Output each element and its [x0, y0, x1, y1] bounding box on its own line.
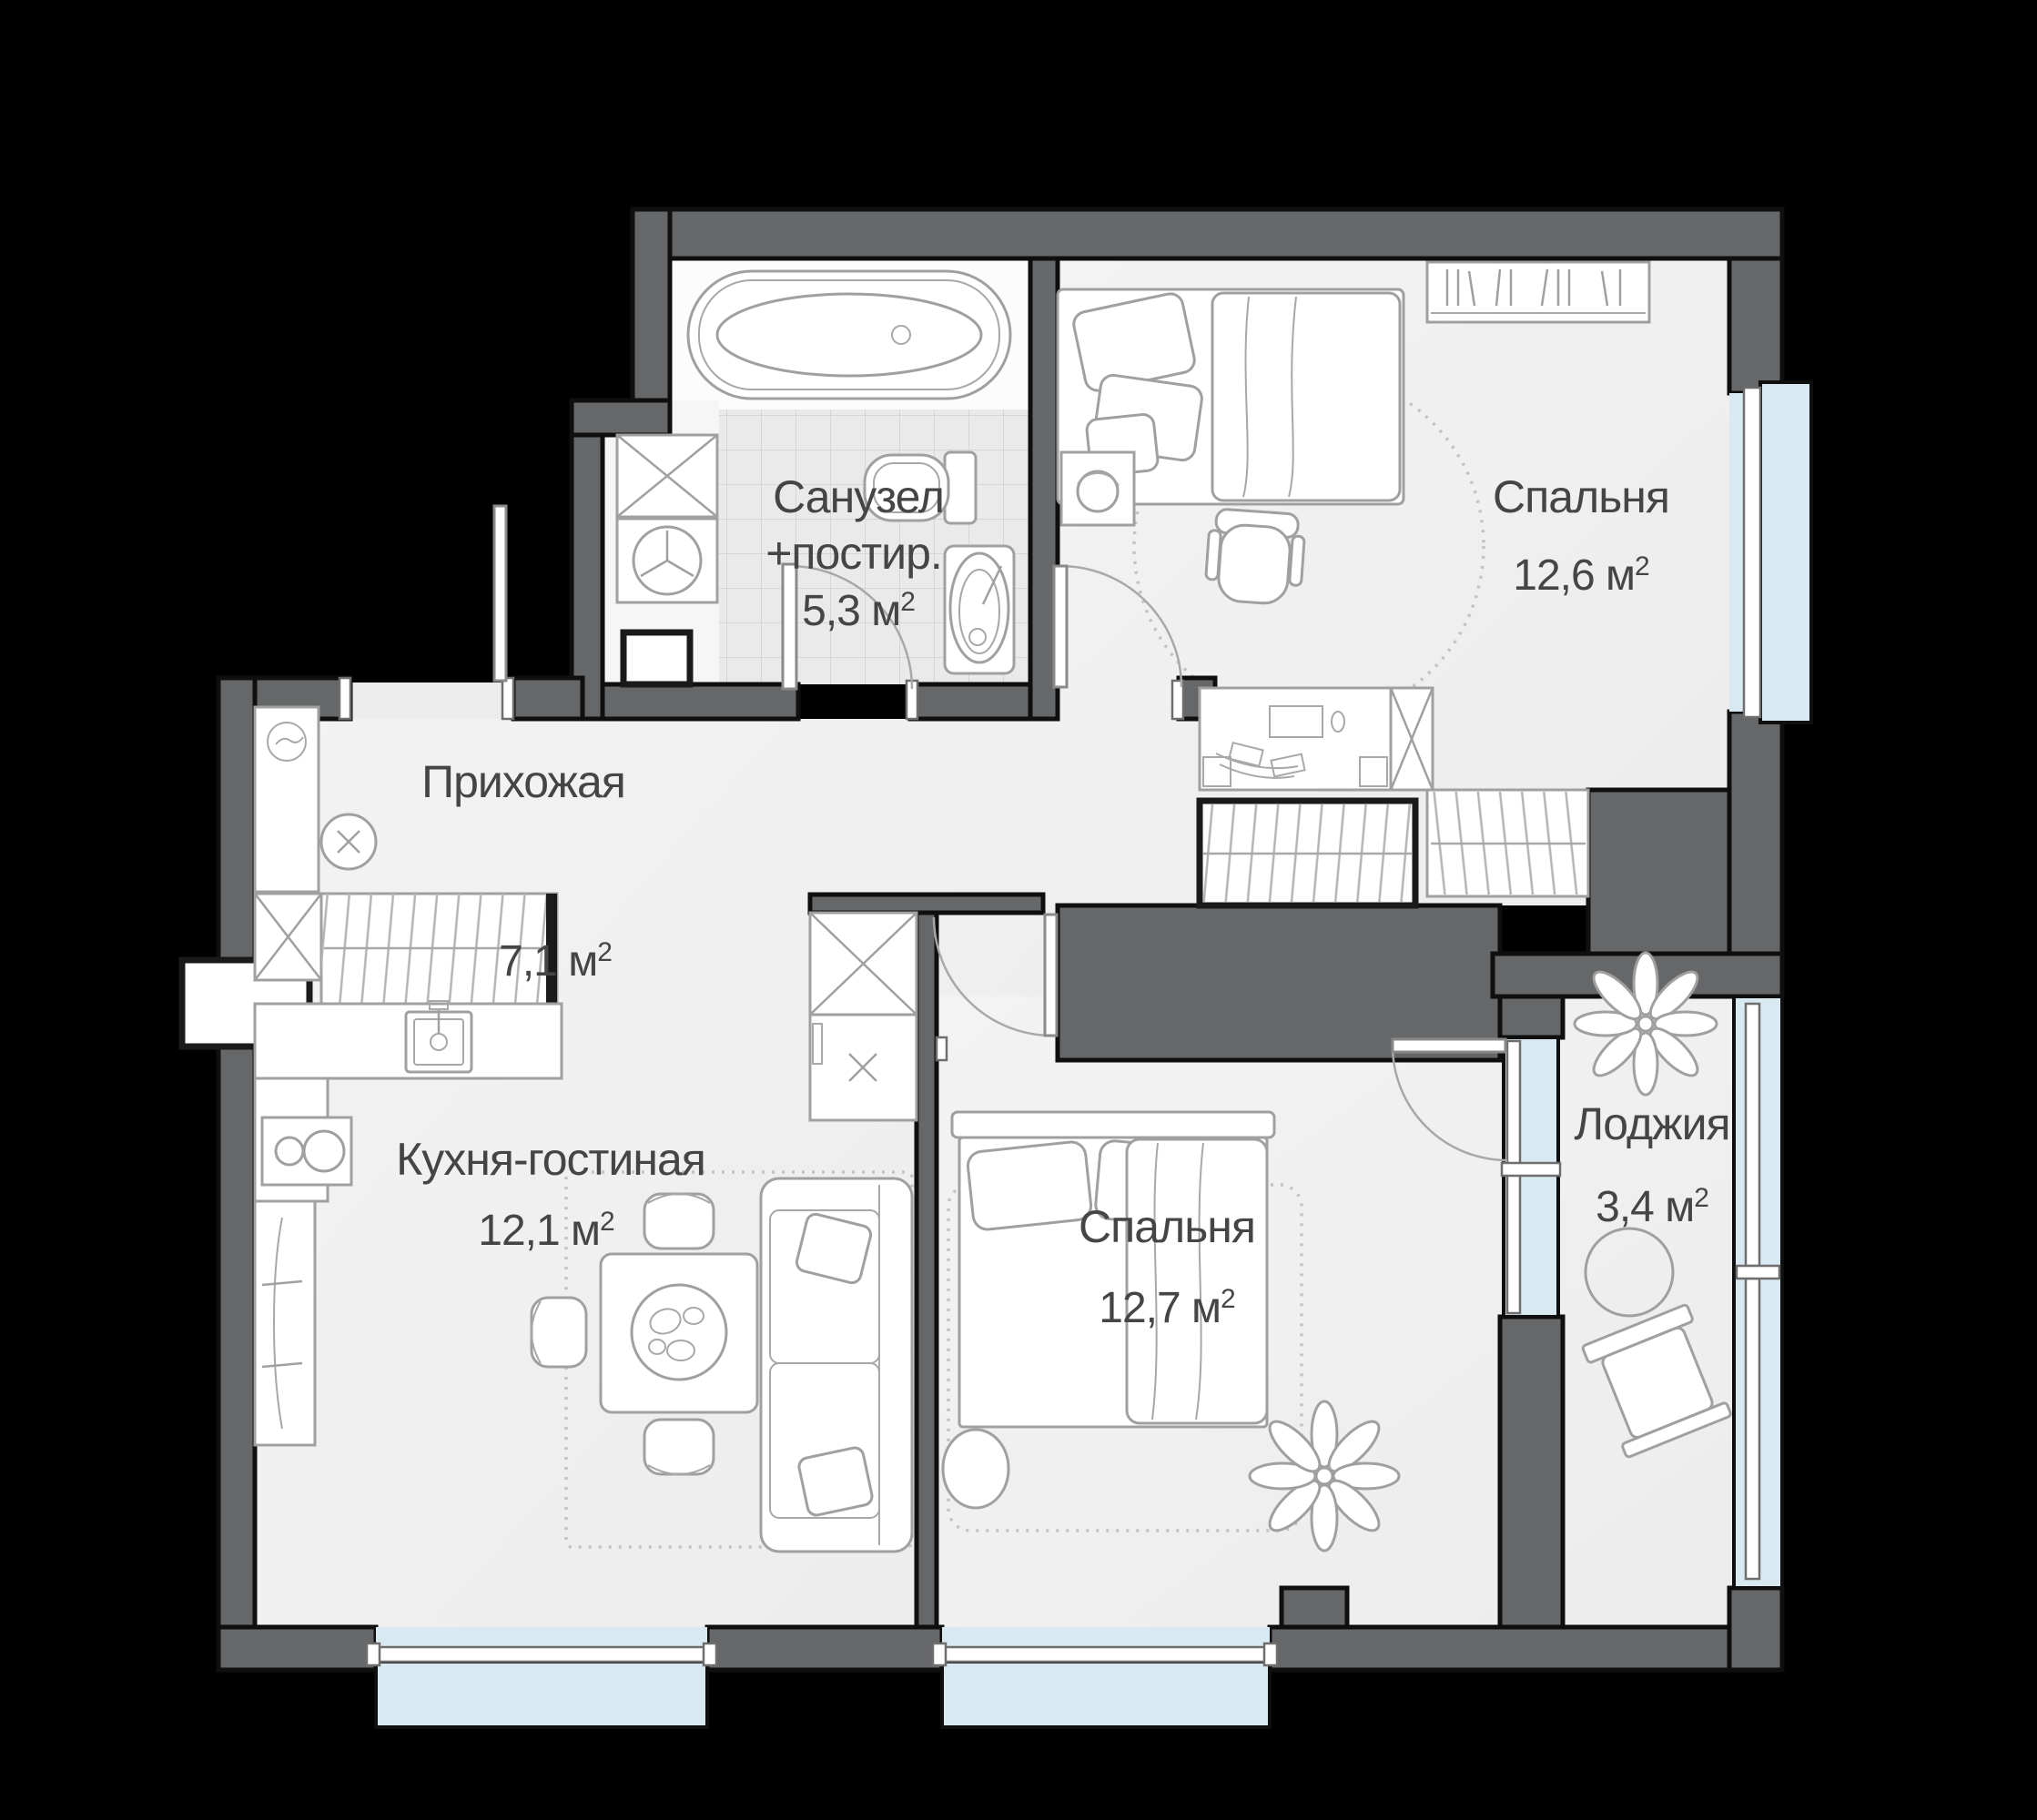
loggia-glazed-partition: [1502, 1037, 1560, 1317]
bathtub-icon: [688, 271, 1010, 399]
floor-plan-stage: Санузел +постир. 5,3 м2 Спальня 12,6 м2 …: [0, 0, 2037, 1820]
closet-x-icon: [810, 913, 917, 1015]
kitchen-counter-top: [255, 1001, 562, 1078]
double-bed-icon: [952, 1112, 1274, 1427]
wall-right-bottom-corner: [1729, 1588, 1782, 1670]
closet-block: [810, 913, 917, 1120]
bedroom-top-area: 12,6 м2: [1513, 551, 1649, 600]
tall-cabinet-icon: [255, 1201, 315, 1445]
wall-closet-top: [810, 895, 1043, 913]
wall-right-upper: [1729, 258, 1782, 393]
nightstand-headphones-icon: [1061, 452, 1134, 525]
bedroom-bottom-window: [933, 1627, 1277, 1727]
stove-icon: [262, 1117, 351, 1185]
kitchen-label: Кухня-гостиная: [396, 1134, 705, 1185]
bookshelf-icon: [1427, 262, 1649, 322]
wall-left: [218, 678, 255, 1670]
bathroom-area: 5,3 м2: [802, 587, 915, 635]
wardrobe-x-icon: [617, 435, 717, 517]
hallway-area: 7,1 м2: [499, 937, 612, 986]
dryer-icon: [617, 519, 717, 602]
wall-bottom-pier: [707, 1627, 942, 1670]
sofa-icon: [761, 1178, 912, 1552]
dining-chair-icon: [644, 1194, 714, 1249]
floor-plan-svg: Санузел +постир. 5,3 м2 Спальня 12,6 м2 …: [0, 0, 2037, 1820]
wardrobe-icon: [1427, 790, 1588, 896]
closet-cabinet-icon: [810, 1015, 917, 1120]
kitchen-area: 12,1 м2: [478, 1207, 614, 1255]
wall-bath-bottom-left: [603, 684, 798, 719]
wall-hall-top-right: [513, 678, 583, 719]
loggia-area: 3,4 м2: [1596, 1183, 1708, 1231]
wall-niche-step: [572, 400, 670, 435]
built-in-wardrobe-icon: [1200, 801, 1415, 905]
bedroom-top-window: [1729, 382, 1811, 723]
wall-bathtub-left: [633, 209, 670, 408]
kitchen-window: [367, 1627, 716, 1727]
wall-partition-stub-bottom: [1500, 1317, 1563, 1670]
wall-bottom-right: [1270, 1627, 1782, 1670]
bedroom-bottom-label: Спальня: [1079, 1201, 1255, 1252]
plant-icon: [1575, 953, 1717, 1095]
loggia-label: Лоджия: [1574, 1098, 1729, 1149]
wall-bedroom-window-pier: [1282, 1588, 1347, 1627]
washbasin-icon: [945, 546, 1014, 673]
bedroom-top-label: Спальня: [1493, 471, 1669, 522]
wall-partition-stub-top: [1500, 996, 1563, 1037]
wall-bottom-left: [218, 1627, 376, 1670]
bedroom-bottom-area: 12,7 м2: [1099, 1284, 1235, 1332]
wall-top: [633, 209, 1782, 258]
hallway-label: Прихожая: [421, 756, 625, 807]
wall-bath-bottom-right: [910, 684, 1038, 719]
loggia-window: [1734, 996, 1782, 1588]
entrance-threshold: [350, 682, 502, 719]
pouf-icon: [321, 814, 376, 869]
pouf-icon: [943, 1430, 1008, 1508]
hall-cabinet-x-icon: [255, 894, 321, 980]
laundry-box-icon: [623, 632, 690, 684]
cabinet-x-icon: [1391, 688, 1433, 790]
plant-icon: [1250, 1401, 1399, 1551]
wall-kitchen-bedroom-partition: [917, 913, 937, 1627]
dining-chair-icon: [644, 1420, 714, 1474]
bathroom-label: Санузел: [773, 471, 944, 522]
bathroom-label-2: +постир.: [765, 528, 942, 579]
desk-icon: [1200, 688, 1391, 790]
shoe-console-icon: [255, 707, 319, 892]
dining-chair-icon: [532, 1298, 586, 1367]
wall-slab-bedrooms: [1058, 905, 1500, 1060]
